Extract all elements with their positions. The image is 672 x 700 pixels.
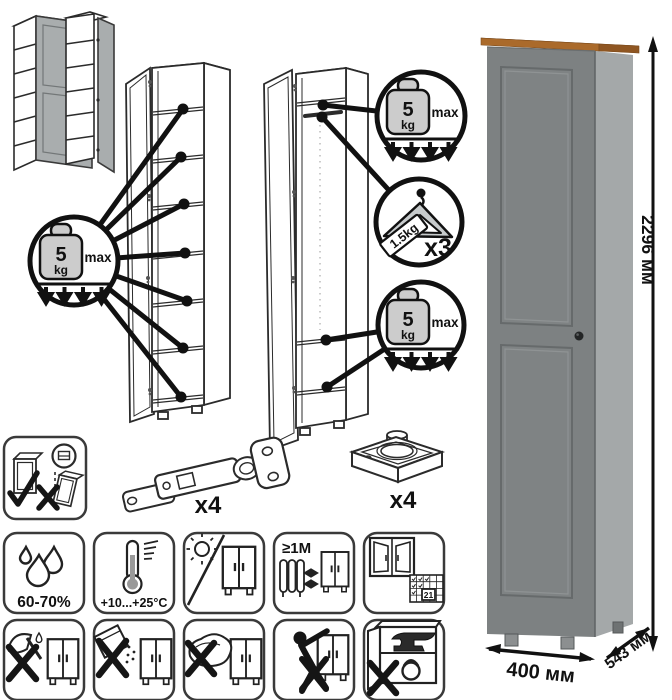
pictogram-grid: x4 x4 60-70% +1 (0, 425, 470, 700)
hanger-load-callout: 1.5kg x3 (376, 179, 462, 265)
depth-dimension: 543 мм (602, 628, 655, 673)
weight-unit: kg (401, 328, 415, 342)
no-abrasive-powder-icon (94, 620, 174, 700)
wardrobe-product-image (481, 38, 639, 649)
product-view: 2296 мм 400 мм 543 мм (455, 0, 672, 700)
door-knob (575, 332, 584, 341)
thumbnail-cabinet-open (66, 12, 114, 172)
cabinet-diagram-wardrobe (264, 68, 368, 450)
loading-diagrams: 5 kg max (0, 0, 480, 452)
door-upper-panel (501, 67, 572, 326)
calendar-glyph: 21 (410, 575, 443, 602)
weight-unit: kg (401, 118, 415, 132)
shelf-weight-limit-callout: 5 kg max (30, 217, 118, 305)
calendar-day: 21 (424, 590, 434, 600)
no-solvents-icon (4, 620, 84, 700)
hinge-hardware-icon: x4 (118, 436, 292, 520)
carry-upright-warning-icon (4, 437, 86, 519)
top-shelf-weight-limit-callout: 5 kg max (377, 72, 465, 160)
bottom-shelf-weight-limit-callout: 5 kg max (378, 282, 464, 368)
instruction-sheet: 5 kg max (0, 0, 672, 700)
depth-label: 543 мм (602, 628, 655, 673)
width-label: 400 мм (505, 659, 575, 688)
humidity-label: 60-70% (17, 594, 71, 611)
foot-count-label: x4 (390, 487, 417, 514)
hanger-count-label: x3 (424, 234, 452, 262)
temperature-label: +10...+25°C (101, 596, 168, 610)
width-dimension: 400 мм (485, 644, 595, 688)
heat-source-distance-icon: ≥1М (274, 533, 354, 613)
weight-max-label: max (84, 250, 112, 265)
foot-hardware-icon: x4 (352, 431, 442, 514)
hinge-count-label: x4 (195, 492, 222, 519)
height-dimension: 2296 мм (638, 36, 658, 652)
door-lower-panel (501, 345, 572, 598)
no-hanging-on-door-icon (274, 620, 354, 700)
no-direct-sunlight-icon (184, 533, 264, 613)
ventilation-icon: 21 (364, 533, 444, 613)
no-heavy-objects-icon (364, 620, 444, 700)
radiator-glyph (280, 560, 304, 597)
no-abrasive-sponge-icon (184, 620, 264, 700)
distance-label: ≥1М (282, 540, 311, 557)
weight-unit: kg (54, 263, 68, 277)
humidity-icon: 60-70% (4, 533, 84, 613)
height-label: 2296 мм (638, 215, 658, 285)
temperature-icon: +10...+25°C (94, 533, 174, 613)
